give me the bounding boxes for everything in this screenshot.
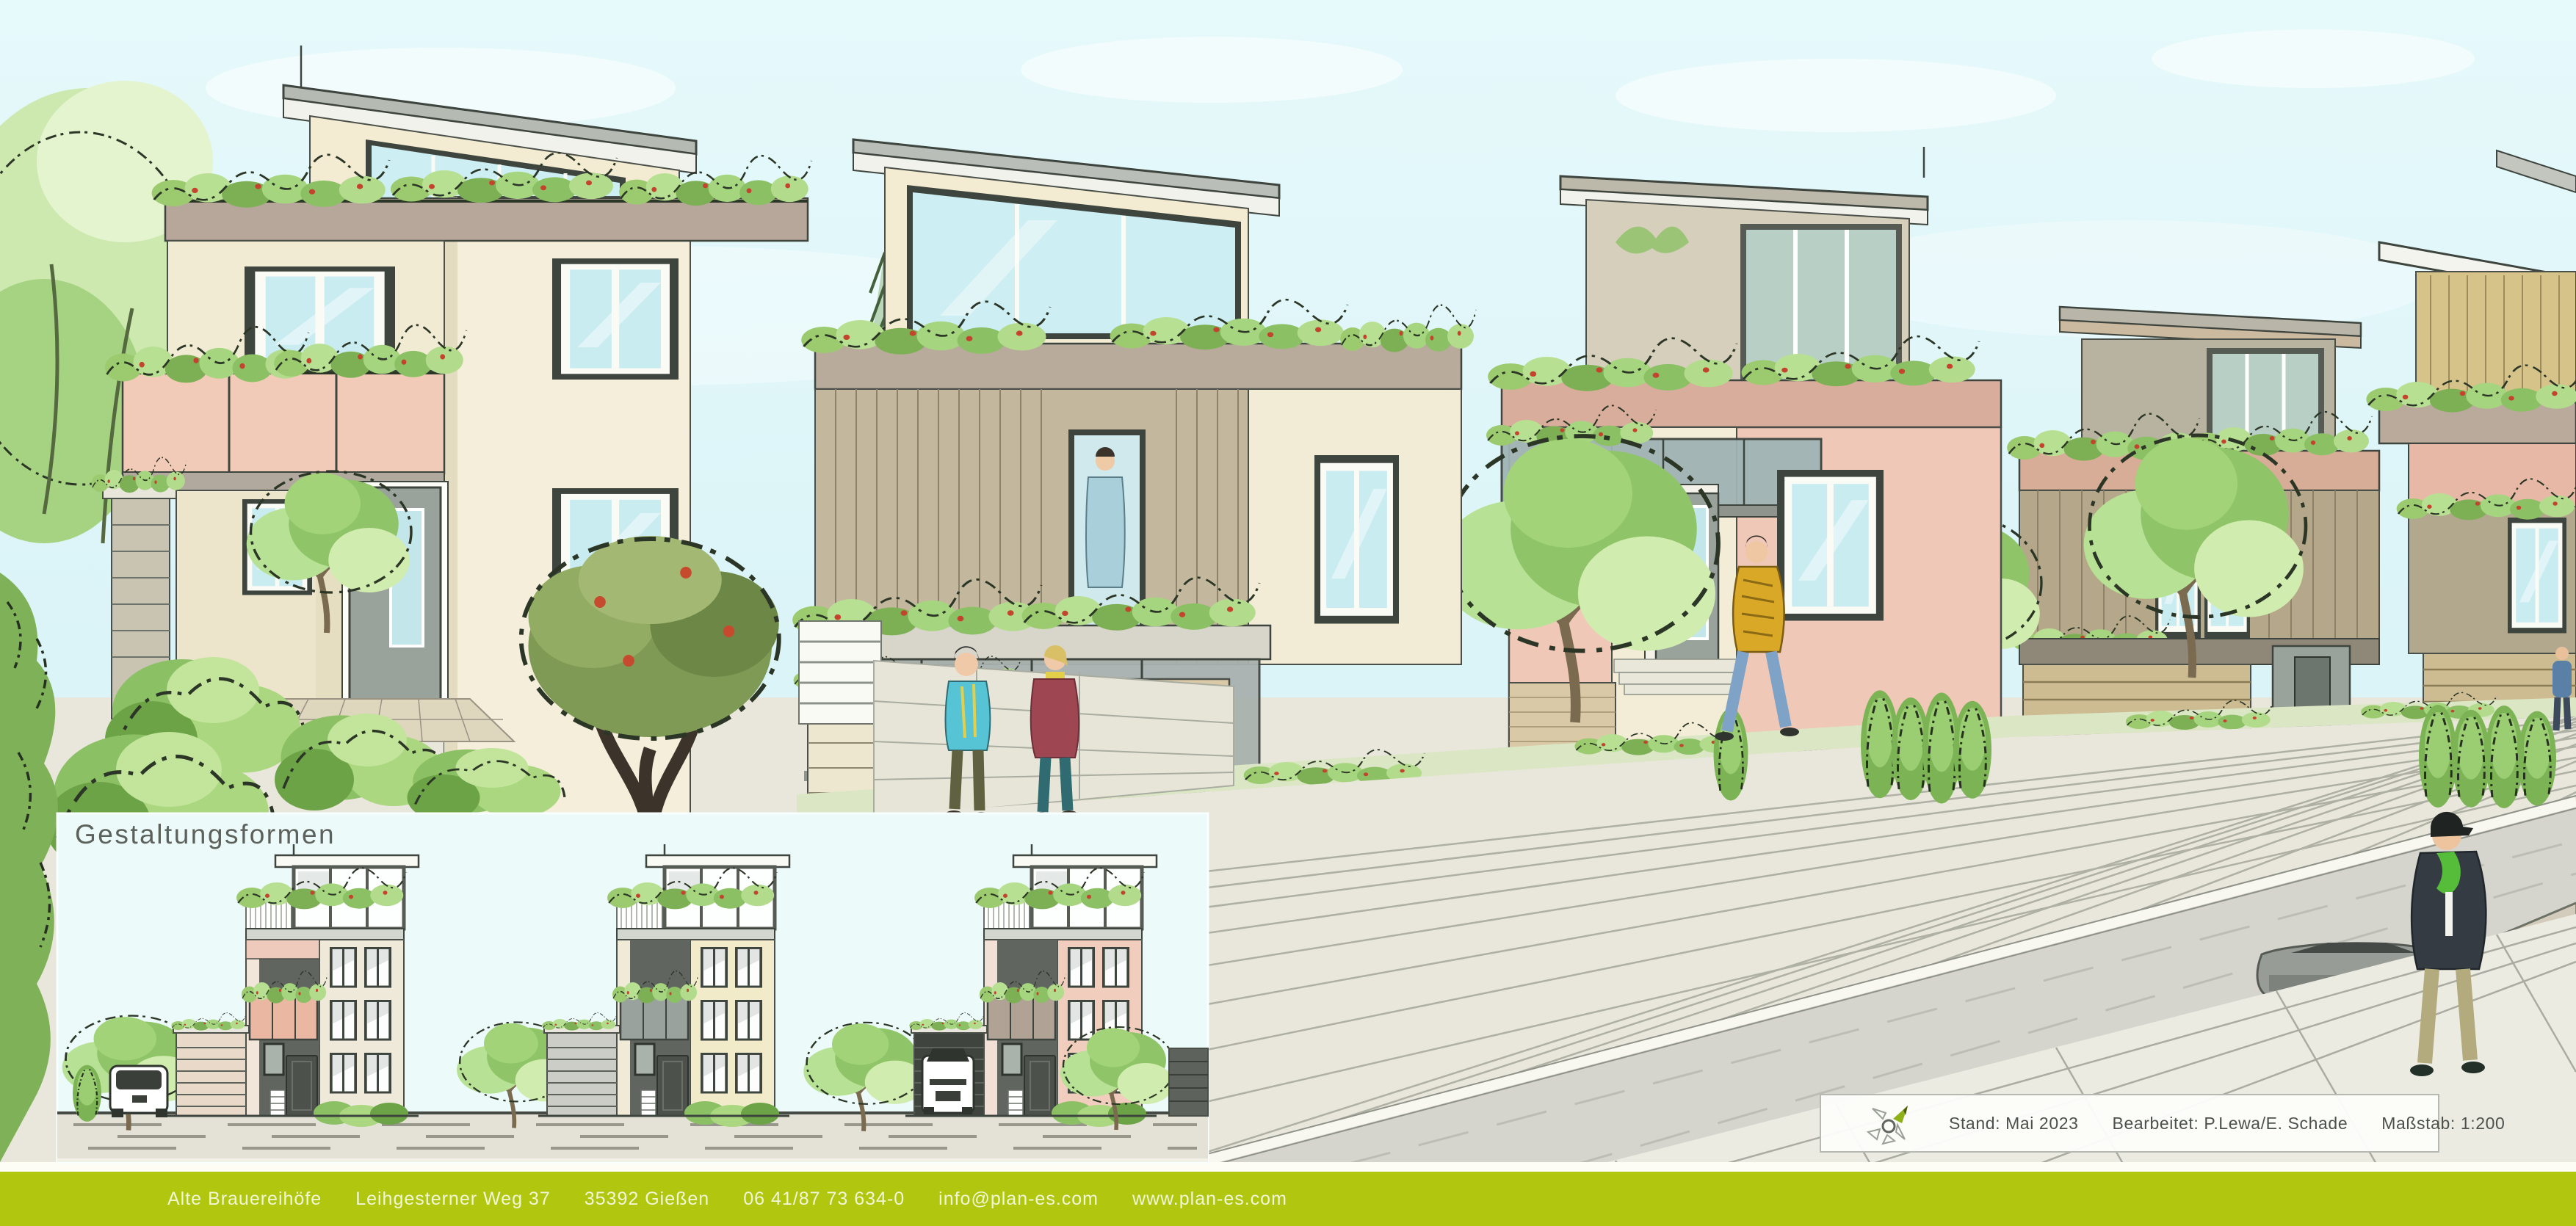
presentation-board: Gestaltungsformen Stand: Mai 2023 Bearbe… [0,0,2576,1226]
inset-car-street [110,1066,167,1117]
inset-title: Gestaltungsformen [75,819,336,850]
footer-phone: 06 41/87 73 634-0 [743,1189,905,1210]
footer-website: www.plan-es.com [1132,1189,1287,1210]
info-box: Stand: Mai 2023 Bearbeitet: P.Lewa/E. Sc… [1820,1094,2439,1153]
footer-city: 35392 Gießen [585,1189,709,1210]
perspective-illustration [0,0,2576,1226]
inset-car-garage [922,1048,974,1114]
plan-es-pinwheel-logo-icon [1864,1101,1914,1145]
info-stand: Stand: Mai 2023 [1949,1114,2079,1133]
footer-email: info@plan-es.com [938,1189,1099,1210]
inset-panel [57,813,1208,1162]
info-bearbeitet: Bearbeitet: P.Lewa/E. Schade [2113,1114,2348,1133]
info-massstab: Maßstab: 1:200 [2381,1114,2505,1133]
footer-bar: Alte Brauereihöfe Leihgesterner Weg 37 3… [0,1172,2576,1226]
inset-garage-partial [1169,1048,1208,1116]
footer-project-name: Alte Brauereihöfe [167,1189,322,1210]
footer-street: Leihgesterner Weg 37 [355,1189,551,1210]
